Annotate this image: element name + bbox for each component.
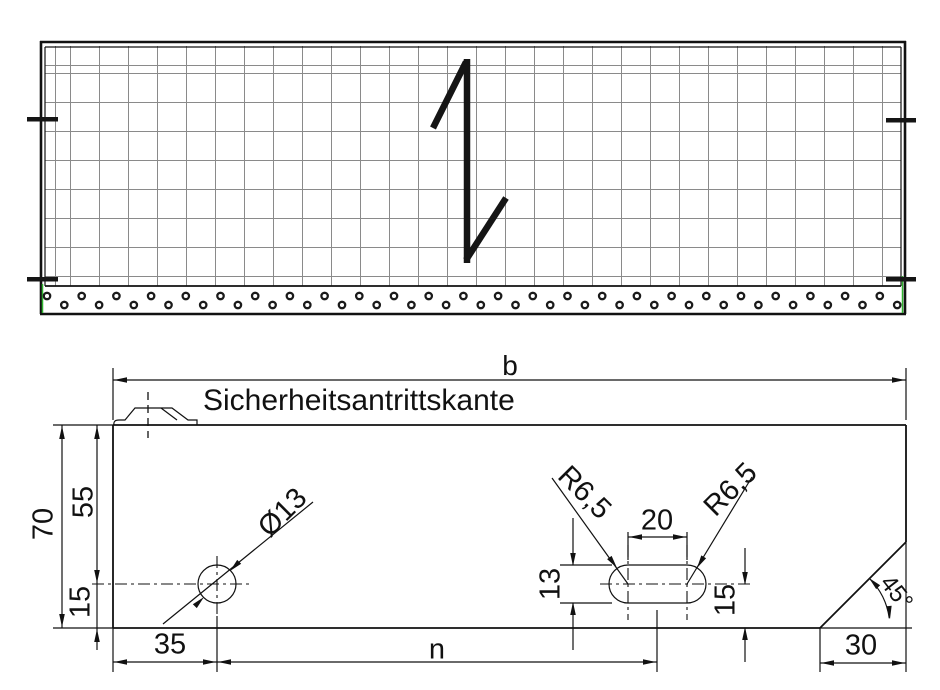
- dim-width-label: b: [502, 352, 518, 380]
- perforation-strip: [44, 293, 901, 308]
- grating-top-view: [27, 41, 916, 314]
- dim-lower-height-label: 15: [67, 586, 96, 618]
- dim-slot-length-label: 20: [641, 507, 673, 536]
- dim-hole-spacing-label: n: [429, 636, 445, 665]
- break-line-icon: [433, 59, 506, 263]
- dimension-arrowheads: [59, 377, 905, 666]
- tread-profile: [114, 392, 197, 438]
- dim-upper-height-label: 55: [70, 486, 99, 518]
- dim-hole-offset-label: 35: [154, 631, 186, 660]
- drawing-linework: [0, 0, 940, 690]
- dim-bottom: [113, 610, 657, 672]
- safety-edge-label: Sicherheitsantrittskante: [203, 386, 515, 416]
- dim-chamfer-width-label: 30: [845, 632, 877, 661]
- technical-drawing-page: b Sicherheitsantrittskante 70 55 15 35 n…: [0, 0, 940, 690]
- dim-total-height-label: 70: [30, 508, 59, 540]
- dim-slot-width-label: 13: [537, 568, 566, 600]
- dim-slot-edge-label: 15: [712, 584, 741, 616]
